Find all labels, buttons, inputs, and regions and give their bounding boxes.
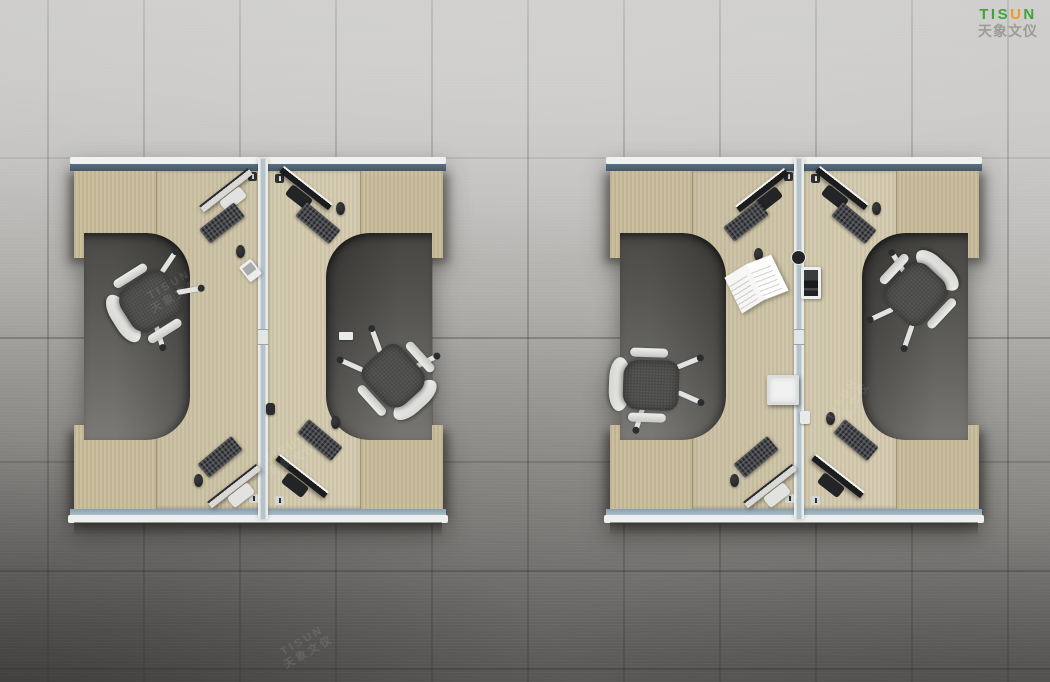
office-chair	[602, 346, 689, 425]
mouse	[194, 474, 203, 487]
divider-junction	[258, 329, 268, 345]
workstation-cluster-right	[604, 157, 984, 523]
floor-seam	[0, 570, 1050, 572]
desk-accessory	[266, 403, 275, 415]
office-topdown-photo: TISUN天象文仪 TISUN天象文仪 TISUN天象文仪 TISUN天象文仪 …	[0, 0, 1050, 682]
desk-accessory	[800, 411, 810, 424]
floor-seam	[0, 668, 1050, 670]
workstation-cluster-left	[68, 157, 448, 523]
desk-accessory	[339, 332, 353, 340]
divider-badge	[811, 496, 820, 505]
brand-logo: TISUN 天象文仪	[970, 6, 1046, 39]
storage-box	[767, 375, 799, 405]
mouse	[331, 416, 340, 429]
brand-logo-en: TISUN	[970, 6, 1046, 23]
divider-badge	[275, 496, 284, 505]
divider-cup	[791, 250, 806, 265]
divider-junction	[794, 329, 804, 345]
divider-mounted-screen	[801, 267, 821, 299]
mouse	[730, 474, 739, 487]
mouse	[872, 202, 881, 215]
brand-logo-cn: 天象文仪	[970, 23, 1046, 39]
mouse	[336, 202, 345, 215]
mouse	[236, 245, 245, 258]
divider-screen	[794, 159, 804, 519]
